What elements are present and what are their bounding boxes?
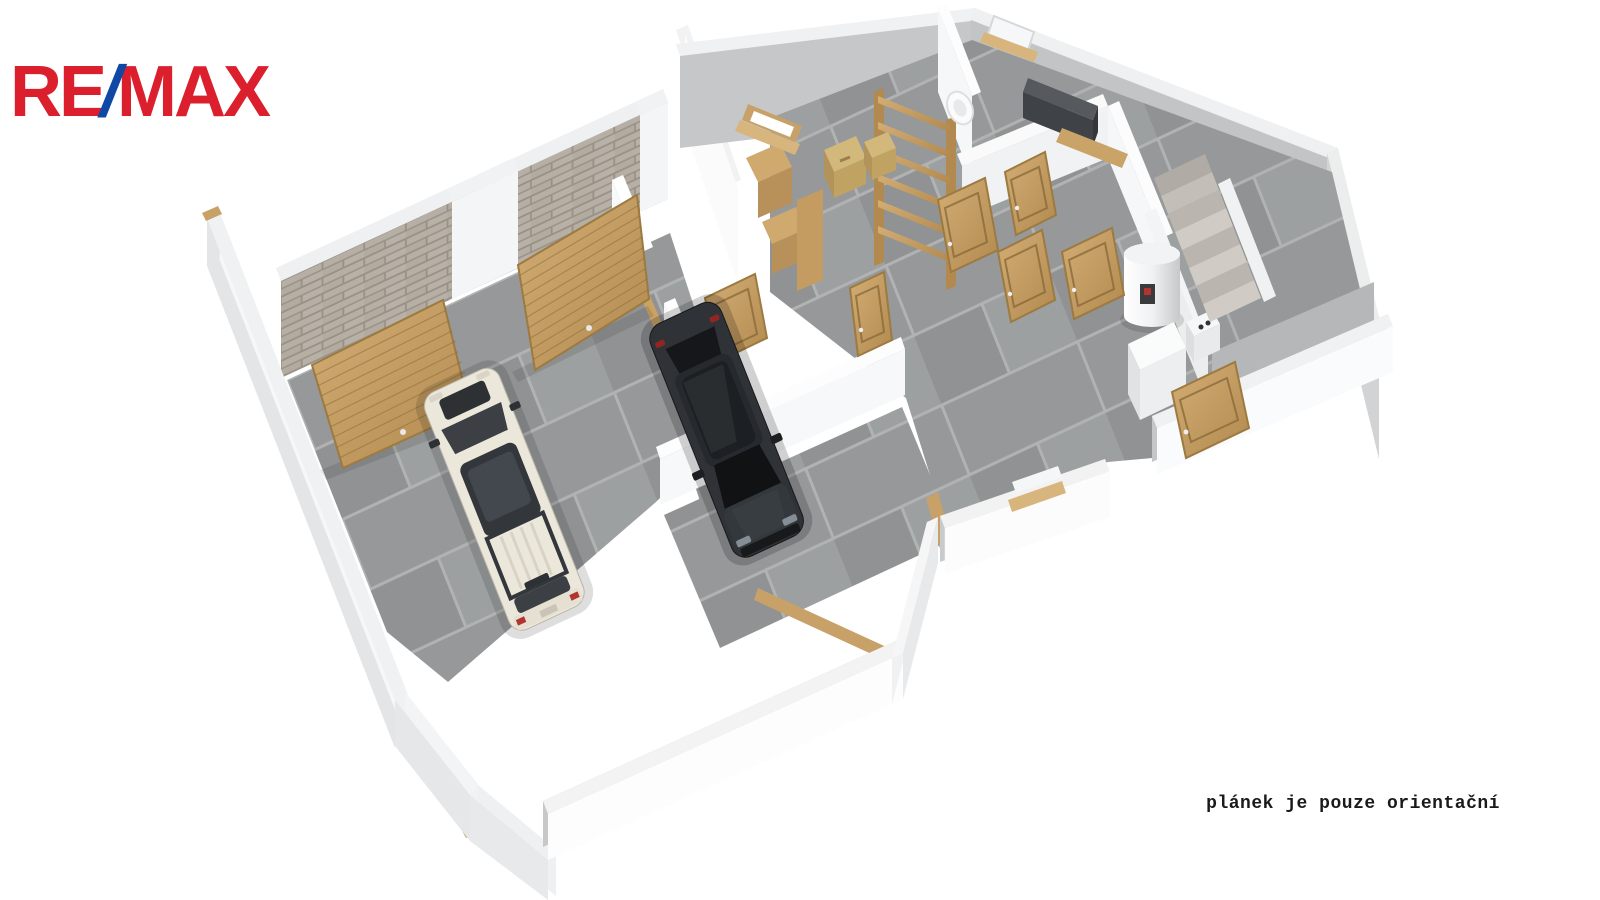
remax-logo: RE/MAX — [10, 56, 268, 128]
remax-logo-max: MAX — [117, 52, 268, 132]
corridor-door-2 — [850, 272, 892, 356]
floorplan-scene — [0, 0, 1600, 900]
water-heater — [1120, 243, 1184, 333]
disclaimer-text: plánek je pouze orientační — [1206, 794, 1500, 814]
remax-logo-re: RE — [10, 52, 104, 132]
floorplan-render-page: RE/MAX plánek je pouze orientační — [0, 0, 1600, 900]
